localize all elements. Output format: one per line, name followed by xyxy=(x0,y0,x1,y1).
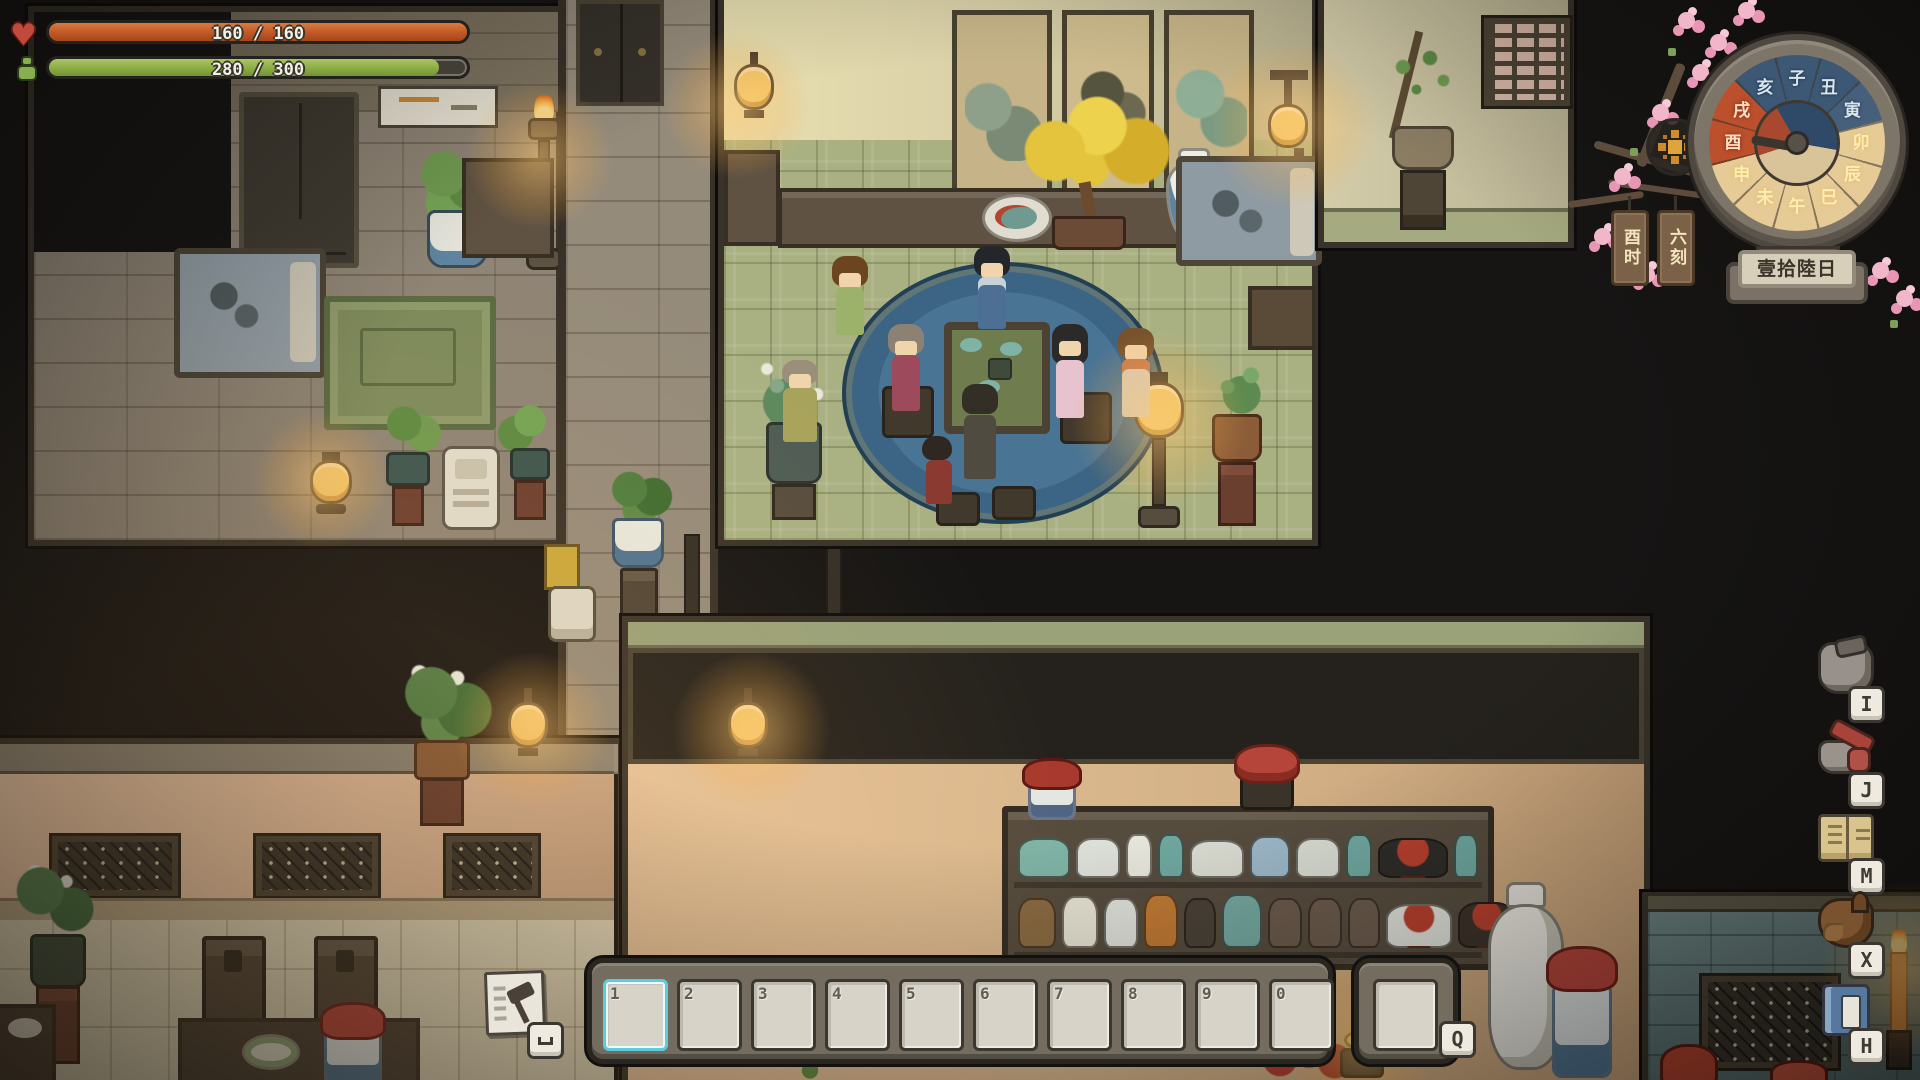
floor-lantern xyxy=(302,452,360,522)
health-bar: 160 / 160 xyxy=(46,20,470,44)
wall-lantern xyxy=(502,688,554,780)
zodiac-hour-1: 子 xyxy=(1785,67,1809,91)
pottery-item xyxy=(1268,898,1302,948)
zodiac-hour-3: 寅 xyxy=(1840,99,1864,123)
zodiac-hour-8: 未 xyxy=(1753,186,1777,210)
quarter-tag-text: 六刻 xyxy=(1666,228,1686,268)
red-cloth-jar xyxy=(320,1002,386,1080)
pottery-item xyxy=(1144,894,1178,948)
chest xyxy=(1248,286,1316,350)
keycap-m[interactable]: M xyxy=(1848,858,1885,895)
orchid-stand xyxy=(1186,348,1286,534)
tools-icon xyxy=(1818,740,1860,774)
zodiac-clock: 子丑寅卯辰巳午未申酉戌亥 xyxy=(1688,34,1906,252)
zodiac-hour-5: 辰 xyxy=(1840,163,1864,187)
pottery-item xyxy=(1126,834,1152,878)
potted-plant xyxy=(366,394,450,534)
zodiac-hour-11: 戌 xyxy=(1730,99,1754,123)
hanging-lantern xyxy=(732,52,776,130)
hotbar-slot-number: 6 xyxy=(980,984,990,1003)
wardrobe xyxy=(239,92,359,268)
hammer-icon xyxy=(506,981,536,1005)
veggie-plate xyxy=(242,1034,300,1070)
keycap-h[interactable]: H xyxy=(1848,1028,1885,1065)
pottery-item xyxy=(1190,840,1244,878)
hotbar-slot-8[interactable]: 8 xyxy=(1121,979,1186,1051)
hammer-icon-handle xyxy=(513,998,530,1024)
status-bars: ♥ 160 / 160 280 / 300 xyxy=(8,12,488,92)
pottery-item xyxy=(1378,838,1448,878)
hotbar-slot-0[interactable]: 0 xyxy=(1269,979,1334,1051)
hotbar-slot-3[interactable]: 3 xyxy=(751,979,816,1051)
quarter-tag: 六刻 xyxy=(1657,210,1695,286)
zodiac-ring: 子丑寅卯辰巳午未申酉戌亥 xyxy=(1709,55,1885,231)
stamina-bar-text: 280 / 300 xyxy=(49,59,467,76)
character-man-back xyxy=(958,384,1002,484)
heart-icon: ♥ xyxy=(10,18,37,53)
zodiac-hour-4: 卯 xyxy=(1849,131,1873,155)
hotbar-slot-number: 1 xyxy=(610,984,620,1003)
stamina-bar: 280 / 300 xyxy=(46,56,470,79)
shrine-table xyxy=(542,548,600,648)
hotbar-slot-number: 2 xyxy=(684,984,694,1003)
pottery-item xyxy=(1386,904,1452,948)
shortcut-i[interactable]: I xyxy=(1812,640,1920,736)
pottery-item xyxy=(1018,898,1056,948)
wall-scroll xyxy=(378,86,498,128)
character-woman-brown-hair xyxy=(1114,328,1158,428)
hour-tag-text: 酉时 xyxy=(1620,228,1640,268)
health-bar-text: 160 / 160 xyxy=(49,23,467,41)
hotbar-slot-number: 4 xyxy=(832,984,842,1003)
clock-knob xyxy=(1785,131,1809,155)
potted-plant xyxy=(492,392,568,532)
keycap-j[interactable]: J xyxy=(1848,772,1885,809)
hotbar-slot-number: 8 xyxy=(1128,984,1138,1003)
tile-edge xyxy=(628,622,1644,648)
corner-table xyxy=(0,1004,56,1080)
entry-table xyxy=(724,150,780,246)
hotbar-slot-number: 0 xyxy=(1276,984,1286,1003)
bed xyxy=(174,248,326,378)
zodiac-hour-9: 申 xyxy=(1730,163,1754,187)
hour-tag: 酉时 xyxy=(1611,210,1649,286)
pottery-item xyxy=(1184,898,1216,948)
hotbar-slots: 1234567890 xyxy=(592,963,1328,1059)
main-hall xyxy=(718,0,1318,546)
extra-slot-keycap[interactable]: Q xyxy=(1439,1021,1476,1058)
bonsai-tree xyxy=(1004,88,1184,248)
date-plaque: 壹拾陸日 xyxy=(1738,250,1856,288)
dark-wall-band xyxy=(628,648,1644,764)
hotbar-slot-2[interactable]: 2 xyxy=(677,979,742,1051)
hotbar-slot-number: 5 xyxy=(906,984,916,1003)
date-text: 壹拾陸日 xyxy=(1757,258,1837,280)
red-cap-pot xyxy=(1660,1044,1718,1080)
window xyxy=(256,836,378,896)
pottery-item xyxy=(1158,834,1184,878)
time-widget: 子丑寅卯辰巳午未申酉戌亥 壹拾陸日 酉时 六刻 xyxy=(1560,0,1920,320)
red-cloth-jar xyxy=(1546,946,1618,1080)
window xyxy=(1484,18,1570,106)
craft-sign-keycap[interactable] xyxy=(527,1022,564,1059)
character-child-back xyxy=(918,436,962,536)
hotbar: 1234567890 xyxy=(587,958,1333,1064)
horse-icon xyxy=(1818,898,1874,948)
hotbar-slot-number: 3 xyxy=(758,984,768,1003)
bonsai-plant xyxy=(1372,30,1482,240)
keycap-i[interactable]: I xyxy=(1848,686,1885,723)
pottery-item xyxy=(1348,898,1380,948)
shortcut-j[interactable]: J xyxy=(1812,726,1920,822)
shortcut-h[interactable]: H xyxy=(1812,982,1920,1078)
side-table xyxy=(462,158,554,258)
hotbar-slot-5[interactable]: 5 xyxy=(899,979,964,1051)
shelf-row xyxy=(1014,900,1482,958)
pottery-item xyxy=(1296,838,1340,878)
tab-key-glyph-icon xyxy=(538,1037,553,1045)
pottery-item xyxy=(1076,838,1120,878)
red-cap-jar xyxy=(1022,758,1082,820)
zodiac-hour-7: 午 xyxy=(1785,195,1809,219)
flower-bush-stand xyxy=(384,648,508,828)
character-elder-woman xyxy=(884,324,928,424)
hall-bed xyxy=(1176,156,1322,266)
hotbar-slot-6[interactable]: 6 xyxy=(973,979,1038,1051)
map-book-icon xyxy=(1818,814,1874,862)
pottery-item xyxy=(1104,898,1138,948)
shortcut-x[interactable]: X xyxy=(1812,896,1920,992)
stamina-figure-icon xyxy=(14,56,40,86)
pottery-item xyxy=(1308,898,1342,948)
character-kneeling-elder xyxy=(778,360,822,460)
zodiac-hour-12: 亥 xyxy=(1753,76,1777,100)
character-host-blue-robe xyxy=(970,246,1014,346)
double-door xyxy=(576,0,664,106)
pottery-item xyxy=(1018,838,1070,878)
wall-lantern xyxy=(722,688,774,784)
pottery-item xyxy=(1250,836,1290,878)
stool xyxy=(992,486,1036,520)
pottery-item xyxy=(1222,894,1262,948)
side-room xyxy=(1318,0,1574,248)
zodiac-hour-6: 巳 xyxy=(1817,186,1841,210)
window xyxy=(446,836,538,896)
zodiac-hour-10: 酉 xyxy=(1721,131,1745,155)
keycap-x[interactable]: X xyxy=(1848,942,1885,979)
extra-slot[interactable] xyxy=(1373,979,1438,1051)
hotbar-slot-9[interactable]: 9 xyxy=(1195,979,1260,1051)
hotbar-slot-number: 9 xyxy=(1202,984,1212,1003)
hotbar-slot-4[interactable]: 4 xyxy=(825,979,890,1051)
pottery-shelf xyxy=(1002,806,1494,970)
hotbar-slot-number: 7 xyxy=(1054,984,1064,1003)
shelf-row xyxy=(1014,836,1482,888)
game-screen: ♥ 160 / 160 280 / 300 xyxy=(0,0,1920,1080)
red-cloth-jar xyxy=(1234,744,1300,812)
character-woman-black-hair xyxy=(1048,324,1092,424)
pottery-item xyxy=(1062,896,1098,948)
zodiac-hour-2: 丑 xyxy=(1817,76,1841,100)
hotbar-slot-7[interactable]: 7 xyxy=(1047,979,1112,1051)
hotbar-slot-1[interactable]: 1 xyxy=(603,979,668,1051)
pottery-item xyxy=(1346,834,1372,878)
pottery-item xyxy=(1454,834,1478,878)
character-standing-girl xyxy=(828,256,872,356)
